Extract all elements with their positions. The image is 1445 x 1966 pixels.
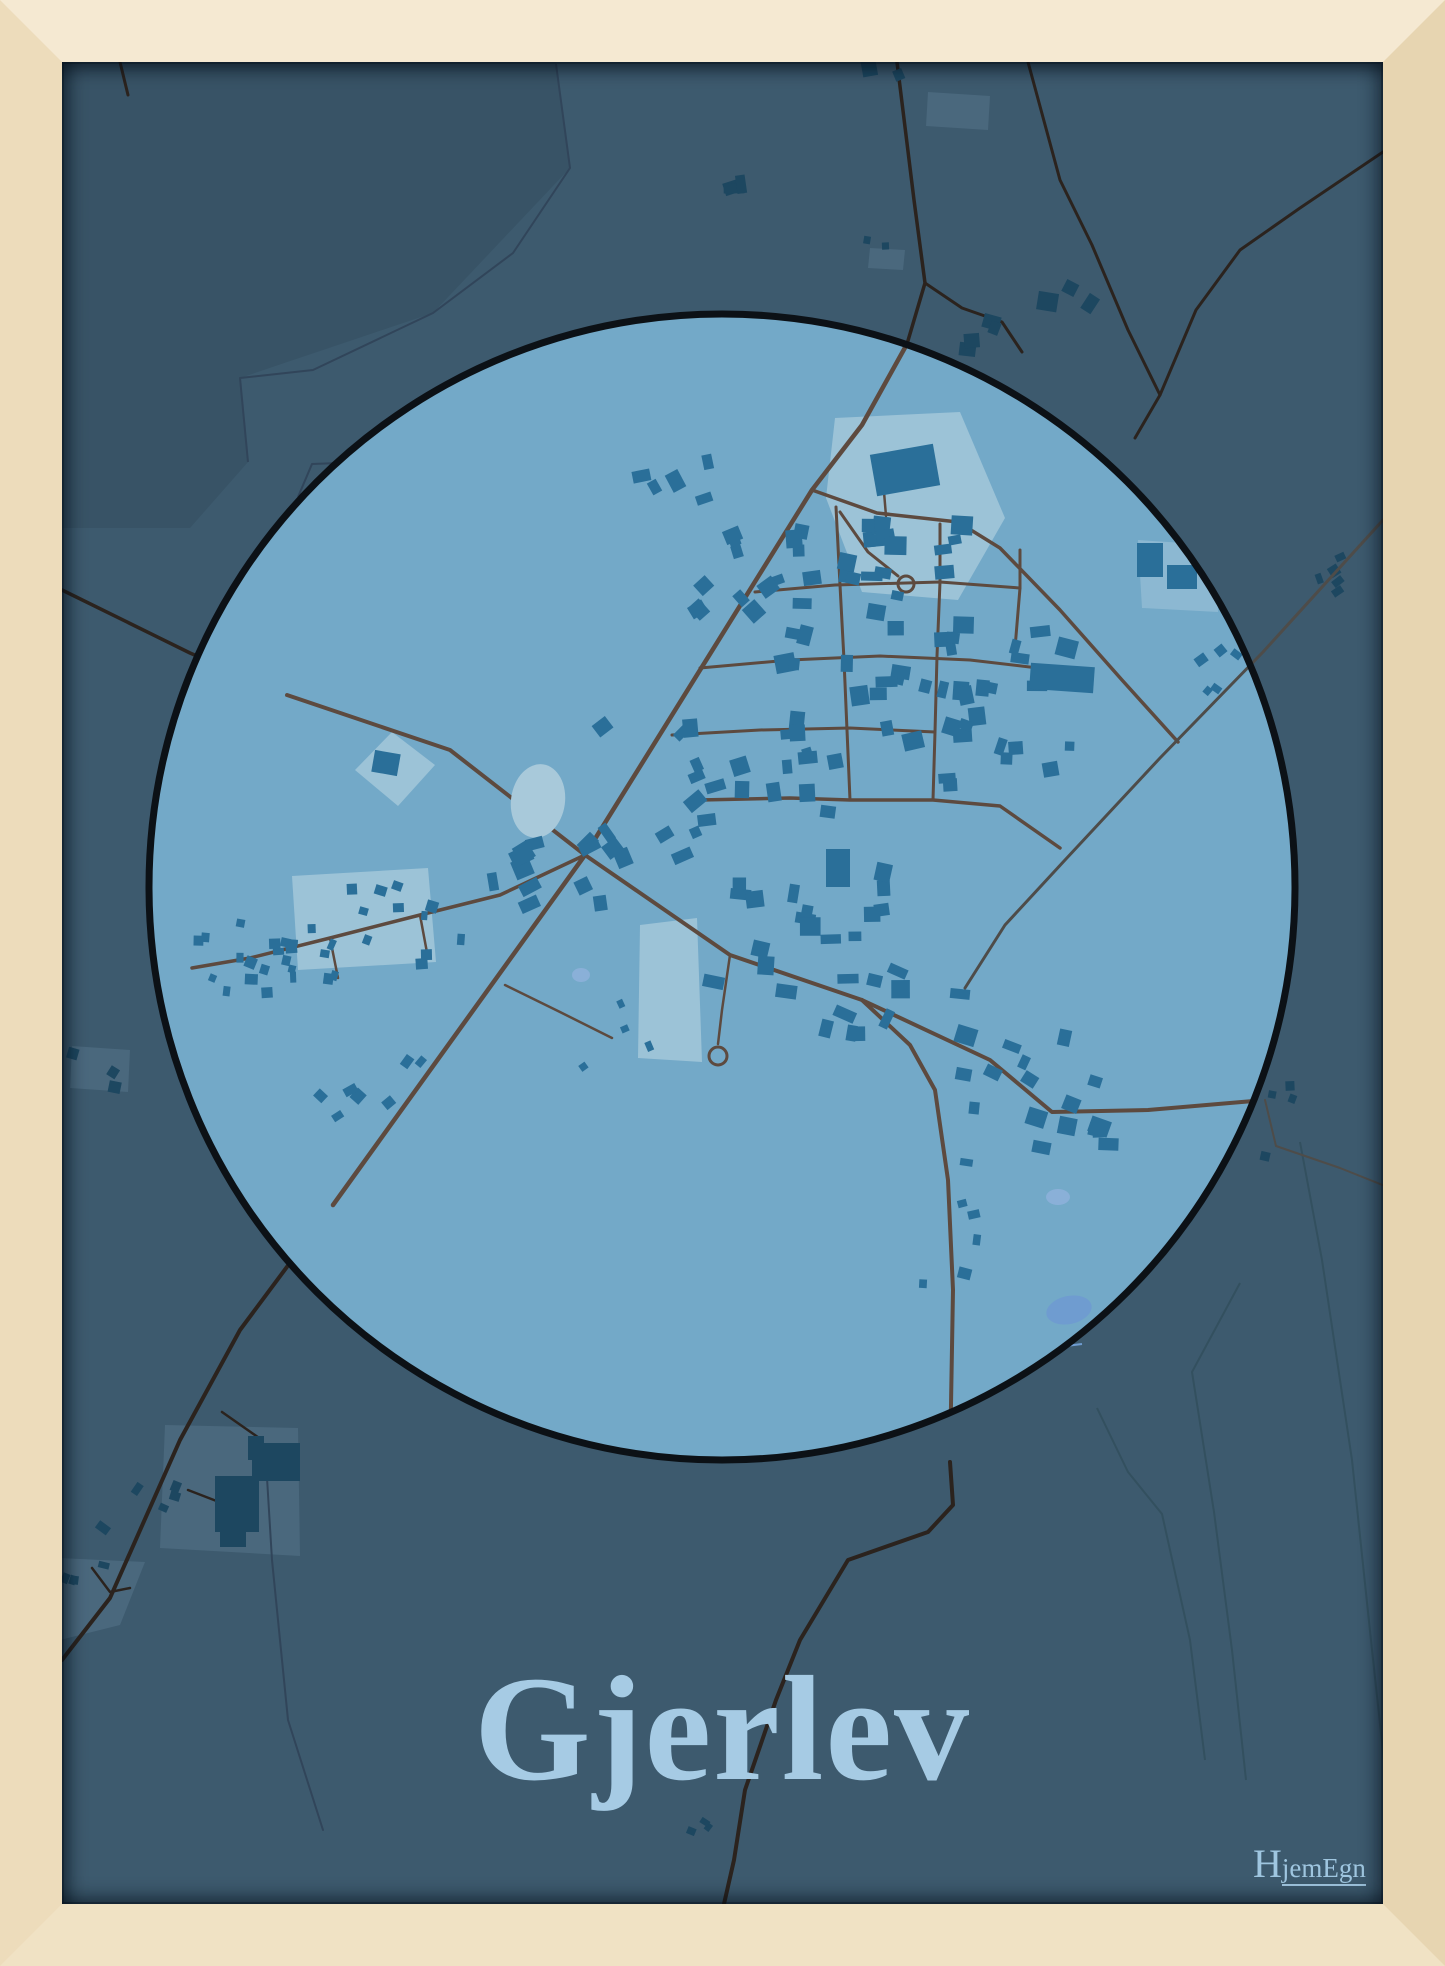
building	[891, 980, 910, 998]
building	[884, 536, 906, 555]
building	[862, 519, 875, 532]
lake	[1046, 1189, 1070, 1205]
building	[201, 932, 210, 942]
building	[457, 934, 465, 946]
brand-initial: H	[1253, 1841, 1282, 1886]
building	[963, 333, 980, 348]
building	[248, 1436, 264, 1460]
building	[745, 890, 765, 909]
building	[347, 884, 358, 895]
building	[236, 953, 243, 963]
building	[371, 750, 400, 776]
building	[798, 751, 818, 765]
building	[837, 552, 857, 572]
residential-patch	[638, 918, 702, 1062]
building	[841, 655, 853, 672]
building	[864, 907, 881, 923]
building	[415, 958, 428, 970]
land-patch	[868, 248, 905, 270]
building	[236, 918, 246, 927]
building	[951, 515, 974, 535]
building	[320, 949, 330, 958]
building	[273, 948, 284, 956]
building	[290, 972, 296, 983]
building	[766, 782, 782, 803]
building	[953, 616, 974, 634]
building	[826, 849, 850, 887]
building	[393, 903, 404, 912]
building	[269, 938, 281, 949]
building	[888, 621, 904, 636]
building	[827, 753, 844, 770]
building	[1268, 1090, 1277, 1099]
map-graphic	[62, 62, 1383, 1904]
building	[946, 632, 960, 645]
building	[757, 956, 774, 976]
building	[1098, 1138, 1119, 1151]
building	[870, 688, 887, 701]
building	[1042, 761, 1060, 778]
building	[220, 1527, 246, 1547]
framed-map-poster: Gjerlev HjemEgn	[0, 0, 1445, 1966]
building	[215, 1476, 259, 1532]
building	[875, 676, 897, 688]
building	[323, 973, 334, 985]
building	[1065, 741, 1075, 751]
building	[261, 987, 273, 998]
lake	[572, 968, 590, 982]
building	[849, 685, 870, 707]
building	[866, 603, 886, 621]
building	[882, 242, 889, 249]
building	[972, 1234, 981, 1246]
town-circle	[149, 314, 1295, 1462]
building	[821, 934, 842, 944]
building	[950, 988, 971, 1000]
building	[697, 813, 716, 827]
building	[861, 571, 883, 581]
building	[919, 1279, 927, 1288]
poster-title: Gjerlev	[62, 1654, 1383, 1804]
building	[863, 236, 871, 245]
building	[593, 895, 608, 912]
building	[1137, 543, 1163, 577]
building	[1008, 741, 1023, 755]
brand-logo: HjemEgn	[1253, 1844, 1366, 1884]
building	[108, 1080, 122, 1094]
building	[775, 983, 798, 999]
building	[820, 805, 837, 819]
building	[782, 759, 793, 774]
building	[1030, 625, 1051, 638]
building	[799, 784, 816, 803]
building	[245, 974, 258, 985]
building	[735, 781, 750, 798]
building	[848, 931, 861, 941]
building	[1057, 1116, 1078, 1136]
building	[785, 529, 803, 548]
building	[934, 565, 954, 580]
brand-rest: jemEgn	[1282, 1853, 1366, 1886]
building	[837, 974, 858, 984]
building	[788, 657, 800, 670]
building	[789, 724, 805, 741]
building	[1029, 663, 1095, 693]
poster-canvas: Gjerlev HjemEgn	[62, 62, 1383, 1904]
building	[800, 917, 821, 936]
building	[968, 1101, 979, 1114]
residential-patch	[292, 868, 436, 970]
land-patch	[926, 92, 990, 130]
building	[801, 904, 814, 918]
building	[1285, 1081, 1294, 1091]
building	[1167, 565, 1197, 589]
building	[802, 570, 822, 586]
building	[308, 924, 316, 933]
building	[285, 942, 297, 954]
building	[793, 598, 812, 609]
building	[421, 911, 428, 920]
building	[1036, 291, 1059, 312]
building	[938, 773, 956, 784]
building	[223, 986, 231, 997]
building	[945, 643, 957, 656]
